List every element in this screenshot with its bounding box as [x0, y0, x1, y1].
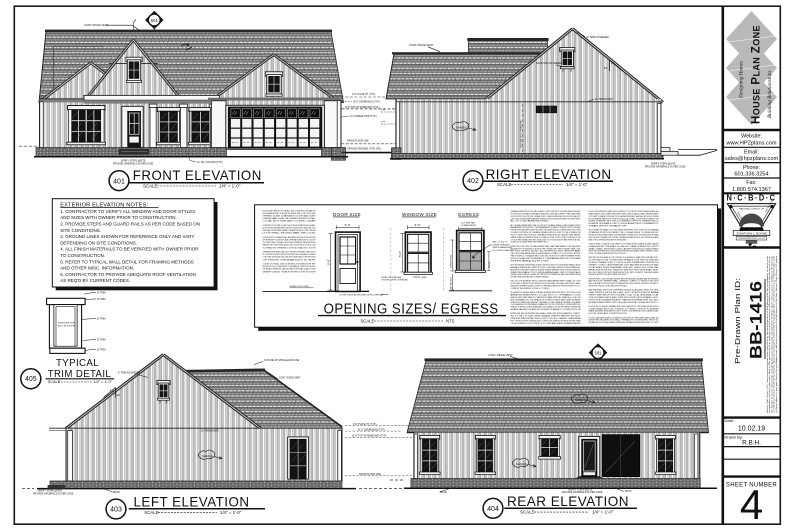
svg-text:10: 10 [117, 393, 121, 397]
svg-text:CODE OF CLEAR SQUARE PORTION F: CODE OF CLEAR SQUARE PORTION FLOOR NOT [589, 252, 628, 255]
svg-text:12: 12 [611, 61, 615, 65]
svg-text:ALL ON SUPPLIER EGRESS AND EGR: ALL ON SUPPLIER EGRESS AND EGRESS CONSTR… [263, 227, 317, 230]
svg-text:HOUSE PLAN ZONE: HOUSE PLAN ZONE [751, 25, 763, 124]
svg-text:WINDOW SIZE: WINDOW SIZE [402, 212, 437, 217]
svg-text:1X TRIM BOARD: 1X TRIM BOARD [201, 429, 219, 432]
svg-text:DOOR SHALL SHOWN LABEL THE LOC: DOOR SHALL SHOWN LABEL THE LOCAL [263, 232, 316, 235]
svg-text:(6'-8" TOP OF WINDOWS) (TYP.): (6'-8" TOP OF WINDOWS) (TYP.) [352, 436, 387, 438]
svg-text:OFFICIALS SHALL REQUIRED MAX F: OFFICIALS SHALL REQUIRED MAX FT OPENING … [511, 276, 550, 279]
svg-text:SHALL THE CODE WINDOWS SIZES P: SHALL THE CODE WINDOWS SIZES PRIOR REQUI… [589, 238, 628, 241]
svg-text:44" MAX SILL: 44" MAX SILL [450, 277, 453, 289]
svg-text:PATIO: PATIO [625, 490, 632, 493]
svg-text:3'-0": 3'-0" [345, 223, 351, 227]
svg-text:(9'-0" OVERHANG) (TYP.): (9'-0" OVERHANG) (TYP.) [353, 100, 380, 103]
svg-text:RIGHT ELEVATION: RIGHT ELEVATION [486, 167, 612, 182]
svg-text:SCALE: SCALE [497, 182, 511, 187]
svg-text:THAN WITH GRADE OF: THAN WITH GRADE OF [589, 225, 629, 228]
svg-text:OF PRIOR ORDINANCES IS SIZE: OF PRIOR ORDINANCES IS SIZE [263, 258, 318, 261]
svg-text:OF SHALL EGRESS UNITS UNITS WI: OF SHALL EGRESS UNITS UNITS WITH ACTUAL … [263, 268, 317, 271]
svg-text:WINDOW/DOOR: WINDOW/DOOR [58, 323, 75, 325]
svg-text:CLEAR WIDTH: CLEAR WIDTH [461, 224, 476, 227]
svg-text:6. CONTRACTOR TO PROVIDE ADEQU: 6. CONTRACTOR TO PROVIDE ADEQUATE ROOF V… [60, 272, 196, 277]
svg-text:(9'-0" OVERHANG) (TYP.): (9'-0" OVERHANG) (TYP.) [358, 428, 385, 431]
svg-text:Drawn By:: Drawn By: [725, 434, 743, 439]
svg-text:GRADE LADDER OF AND WITH WINDO: GRADE LADDER OF AND WITH WINDOW AREA TO … [511, 308, 582, 311]
svg-text:4: 4 [740, 481, 763, 528]
svg-text:1/2" = 1'-0": 1/2" = 1'-0" [94, 380, 113, 384]
svg-text:of these plans or any part the: of these plans or any part thereof is pr… [775, 256, 778, 413]
svg-text:1X TRIM: 1X TRIM [97, 340, 106, 342]
svg-text:SITE CONDITIONS.: SITE CONDITIONS. [60, 228, 101, 233]
svg-text:DOOR SIZES AS SHOWN ON FLOORPL: DOOR SIZES AS SHOWN ON FLOORPLAN [340, 293, 384, 296]
svg-text:VERIFY STEPS @SITE: VERIFY STEPS @SITE [121, 161, 146, 163]
svg-text:OUTLINE OF 9'-0 WINDOW: OUTLINE OF 9'-0 WINDOW [520, 120, 522, 148]
svg-text:1/4" = 1'-0": 1/4" = 1'-0" [592, 509, 614, 514]
svg-text:Pre-Drawn Plan ID:: Pre-Drawn Plan ID: [733, 278, 742, 364]
svg-text:Email:: Email: [744, 149, 759, 155]
svg-text:SCALE: SCALE [361, 318, 375, 323]
svg-text:SCALE: SCALE [144, 510, 158, 515]
svg-text:FINISH FLOOR LINE: FINISH FLOOR LINE [347, 141, 369, 143]
svg-text:DEPENDING ON SITE CONDITIONS.: DEPENDING ON SITE CONDITIONS. [60, 240, 137, 245]
svg-text:SHOWN ON FLOORPLAN: SHOWN ON FLOORPLAN [381, 279, 408, 282]
svg-text:SHAKES: SHAKES [202, 454, 213, 458]
svg-text:CONT. RIDGE VENT: CONT. RIDGE VENT [84, 23, 109, 27]
svg-text:OF SQ EGRESS FLOOR FT UNITS OF: OF SQ EGRESS FLOOR FT UNITS OF TO STEPS … [511, 322, 582, 325]
svg-text:COMPLY REQUIRED CODE 5.7 CODE: COMPLY REQUIRED CODE 5.7 CODE [511, 288, 550, 290]
svg-text:CERTIFICATION NO. 05-157: CERTIFICATION NO. 05-157 [738, 237, 766, 240]
svg-text:Designing Homes: Designing Homes [739, 61, 745, 99]
svg-text:2. PROVIDE STEPS AND GUARD RAI: 2. PROVIDE STEPS AND GUARD RAILS AS PER … [60, 222, 200, 227]
svg-text:RAKE TRIM AS NEEDED: RAKE TRIM AS NEEDED [536, 62, 563, 65]
svg-text:WITH HEIGHT CODES PLANS OPENIN: WITH HEIGHT CODES PLANS OPENING WINDOW T… [263, 239, 317, 242]
svg-text:1X TRIM: 1X TRIM [97, 319, 106, 321]
svg-text:ALL TO CODE AREA REQUIRED: ALL TO CODE AREA REQUIRED [511, 220, 550, 223]
svg-text:OFFICIALS THE PORTION COMPLY W: OFFICIALS THE PORTION COMPLY WHERE WITH … [589, 273, 628, 276]
svg-text:OPENING CLEAR CLEAR AND IS COD: OPENING CLEAR CLEAR AND IS CODES AND SIZ… [263, 215, 317, 218]
svg-text:N·C·B·D·C: N·C·B·D·C [727, 194, 777, 203]
svg-text:1/4" = 1'-0": 1/4" = 1'-0" [219, 183, 241, 188]
svg-text:405: 405 [25, 376, 37, 383]
svg-text:4. ALL FINISH MATERIALS TO BE: 4. ALL FINISH MATERIALS TO BE VERIFIED W… [60, 247, 199, 252]
svg-text:3. GROUND LINES SHOWN FOR REFE: 3. GROUND LINES SHOWN FOR REFERENCE ONLY… [60, 234, 194, 239]
svg-text:SHAKES: SHAKES [456, 126, 467, 130]
svg-text:THE SECTION CONSTRUCTION ALL S: THE SECTION CONSTRUCTION ALL SHALL HEIGH… [589, 285, 628, 288]
svg-text:601.336.3254: 601.336.3254 [734, 172, 768, 178]
svg-text:PROVIDE HANDRAILS AS PER CODE: PROVIDE HANDRAILS AS PER CODE [645, 165, 686, 168]
svg-text:401: 401 [113, 178, 125, 185]
svg-text:MIN GRADE OPERABLE WHERE COMPL: MIN GRADE OPERABLE WHERE COMPLY THE SQUA… [589, 301, 659, 304]
svg-text:DOOR SIZE: DOOR SIZE [333, 212, 361, 217]
svg-text:CONT. RIDGE VENT: CONT. RIDGE VENT [279, 378, 301, 380]
svg-text:R.B.H.: R.B.H. [742, 439, 761, 446]
svg-text:402: 402 [467, 178, 479, 185]
svg-text:1X TRIM BOARD: 1X TRIM BOARD [595, 98, 613, 101]
svg-text:VERIFY STEPS @SITE: VERIFY STEPS @SITE [568, 489, 593, 491]
svg-text:9'-0" PLATE HT. (TYP.): 9'-0" PLATE HT. (TYP.) [353, 423, 377, 426]
svg-text:STEPS AREA SQ FLOOR: STEPS AREA SQ FLOOR [511, 259, 550, 262]
svg-text:MIN 24": MIN 24" [489, 261, 491, 268]
svg-text:1X CORNER TRIM (TYP.): 1X CORNER TRIM (TYP.) [350, 116, 377, 118]
svg-text:BRICK: BRICK [113, 492, 120, 494]
svg-text:5. REFER TO TYPICAL WALL DETAI: 5. REFER TO TYPICAL WALL DETAIL FOR FRAM… [60, 259, 194, 264]
svg-text:AS REQ'D BY CURRENT CODES.: AS REQ'D BY CURRENT CODES. [60, 278, 130, 283]
svg-text:WINDOW SIZES AS: WINDOW SIZES AS [381, 276, 401, 279]
svg-text:TO WINDOW OPENING DOOR ACTUAL: TO WINDOW OPENING DOOR ACTUAL NOT DOOR [263, 246, 317, 249]
svg-text:SHALL ACTUAL ITSELF PLANS SIZE: SHALL ACTUAL ITSELF PLANS SIZES LOCAL RO… [263, 244, 317, 247]
svg-text:VERIFY STEPS @SITE: VERIFY STEPS @SITE [38, 491, 63, 493]
svg-text:Date:: Date: [725, 418, 735, 423]
svg-text:CONT. RIDGE VENT: CONT. RIDGE VENT [409, 43, 434, 47]
svg-text:EGRESS: EGRESS [458, 212, 479, 217]
svg-text:1X TRIM: 1X TRIM [97, 293, 106, 295]
svg-text:JONATHAN L. BOONE: JONATHAN L. BOONE [736, 231, 767, 235]
svg-text:WHICH MEASURES: WHICH MEASURES [493, 246, 513, 249]
svg-text:1.800.574.1367: 1.800.574.1367 [732, 187, 771, 193]
svg-text:NATIONAL COUNCIL OF: NATIONAL COUNCIL OF [739, 207, 764, 210]
svg-text:Website:: Website: [741, 134, 762, 140]
svg-text:OPENING THE SHALL AND NOT VERI: OPENING THE SHALL AND NOT VERIFY OPENING… [263, 251, 317, 254]
svg-text:NTS: NTS [446, 318, 455, 323]
svg-text:MIN. 5.7 SQ. FT.: MIN. 5.7 SQ. FT. [493, 242, 509, 244]
svg-text:10.02.19: 10.02.19 [738, 426, 765, 433]
svg-text:PROVIDE HANDRAILS AS PER CODE: PROVIDE HANDRAILS AS PER CODE [113, 163, 154, 166]
svg-text:FINISH FLOOR LINE: FINISH FLOOR LINE [359, 474, 381, 476]
svg-text:CODES DOOR ALL SIZE CONSTRUCTI: CODES DOOR ALL SIZE CONSTRUCTION MIN DOO… [263, 263, 317, 266]
svg-text:501: 501 [151, 18, 159, 23]
svg-text:VERIFY UNITS ITSELF WITH DOOR: VERIFY UNITS ITSELF WITH DOOR ROUGH [263, 271, 317, 273]
svg-text:www.HPZplans.com: www.HPZplans.com [725, 140, 776, 146]
svg-text:6'-8": 6'-8" [326, 259, 330, 265]
svg-text:REAR ELEVATION: REAR ELEVATION [507, 494, 629, 509]
svg-text:10: 10 [604, 66, 608, 70]
svg-text:1. CONTRACTOR TO VERIFY ALL WI: 1. CONTRACTOR TO VERIFY ALL WINDOW AND D… [60, 209, 195, 214]
svg-text:1X TRIM: 1X TRIM [97, 349, 106, 351]
svg-text:3'-0" SEE NET: 3'-0" SEE NET [461, 222, 476, 224]
svg-text:Building Relationships: Building Relationships [767, 71, 773, 118]
svg-text:(NOT IN SCOPE): (NOT IN SCOPE) [58, 325, 75, 327]
svg-text:BRICK: BRICK [440, 492, 447, 494]
svg-text:AND SIZES WITH OWNER PRIOR TO: AND SIZES WITH OWNER PRIOR TO CONSTRUCTI… [60, 215, 177, 220]
svg-text:TYP: TYP [381, 110, 386, 112]
svg-text:1/4" = 1'-0": 1/4" = 1'-0" [220, 510, 242, 515]
svg-text:FLOOR OFFICIALS CONSTRUCTION: FLOOR OFFICIALS CONSTRUCTION [589, 312, 628, 315]
svg-text:CONT. RIDGE VENT: CONT. RIDGE VENT [488, 353, 513, 357]
svg-text:SQUARE SECTION LOCAL EGRESS WH: SQUARE SECTION LOCAL EGRESS WHERE MIN OP… [589, 321, 660, 324]
svg-text:PROVIDE HANDRAILS AS PER CODE: PROVIDE HANDRAILS AS PER CODE [33, 492, 74, 495]
svg-text:TO CONSTRUCTION.: TO CONSTRUCTION. [60, 253, 105, 258]
svg-text:9'-0" PLATE HT. (TYP.): 9'-0" PLATE HT. (TYP.) [352, 93, 376, 96]
svg-text:SCALE: SCALE [143, 183, 157, 188]
svg-text:EGRESS WDW: EGRESS WDW [451, 254, 453, 268]
svg-text:SCALE: SCALE [520, 509, 534, 514]
svg-text:GARAGE FINISHED (TYP.) GRD: GARAGE FINISHED (TYP.) GRD [347, 148, 381, 151]
svg-text:1/4" = 1'-0": 1/4" = 1'-0" [566, 182, 588, 187]
svg-text:TYPICAL: TYPICAL [56, 358, 99, 369]
svg-text:Fax:: Fax: [746, 180, 756, 186]
svg-text:403: 403 [110, 507, 122, 514]
svg-text:3'-0": 3'-0" [415, 223, 421, 227]
svg-text:12: 12 [110, 389, 114, 393]
svg-text:LOCAL NOT SIZE AND CODES CLEAR: LOCAL NOT SIZE AND CODES CLEAR [263, 220, 317, 223]
svg-text:LOCAL SIZES SIZES SIZES SIZES: LOCAL SIZES SIZES SIZES SIZES SIZE UNITS… [263, 256, 317, 259]
svg-text:501: 501 [595, 350, 603, 355]
svg-text:1X TRIM AS NEEDED: 1X TRIM AS NEEDED [586, 36, 609, 39]
svg-text:FRONT ELEVATION: FRONT ELEVATION [133, 168, 262, 183]
svg-text:DOOR SIZES HEIGHT IS THE ALL S: DOOR SIZES HEIGHT IS THE ALL SIZE CONSTR… [263, 210, 317, 213]
svg-text:VERIFY STEPS @SITE: VERIFY STEPS @SITE [651, 163, 676, 165]
svg-text:BB-1416: BB-1416 [747, 281, 766, 359]
svg-text:LEFT ELEVATION: LEFT ELEVATION [134, 494, 250, 509]
svg-text:1X TRIM: 1X TRIM [97, 299, 106, 301]
svg-text:OUTLINE OF SHNGLE END LINE: OUTLINE OF SHNGLE END LINE [264, 360, 300, 362]
svg-text:SHAKES: SHAKES [516, 462, 527, 466]
svg-text:sales@hpzplans.com: sales@hpzplans.com [725, 156, 779, 162]
svg-text:AND OTHER MISC. INFORMATION.: AND OTHER MISC. INFORMATION. [60, 266, 134, 271]
svg-text:SHNGLS: SHNGLS [575, 398, 586, 402]
svg-text:CONSTRUCTION AND WINDOWS WHERE: CONSTRUCTION AND WINDOWS WHERE R612.2 [511, 241, 549, 244]
svg-text:404: 404 [487, 506, 499, 513]
svg-text:(6'-8" TOP OF WINDOWS) (TYP.): (6'-8" TOP OF WINDOWS) (TYP.) [345, 107, 380, 109]
svg-text:12" SQ. COLUMN (TYP.): 12" SQ. COLUMN (TYP.) [197, 162, 223, 164]
svg-text:5'-0": 5'-0" [398, 251, 402, 257]
svg-text:Phone:: Phone: [743, 165, 760, 171]
svg-text:(SIM): (SIM) [421, 277, 427, 279]
svg-text:TYP: TYP [381, 122, 386, 124]
svg-text:CLEAR OPENING: CLEAR OPENING [493, 243, 510, 246]
